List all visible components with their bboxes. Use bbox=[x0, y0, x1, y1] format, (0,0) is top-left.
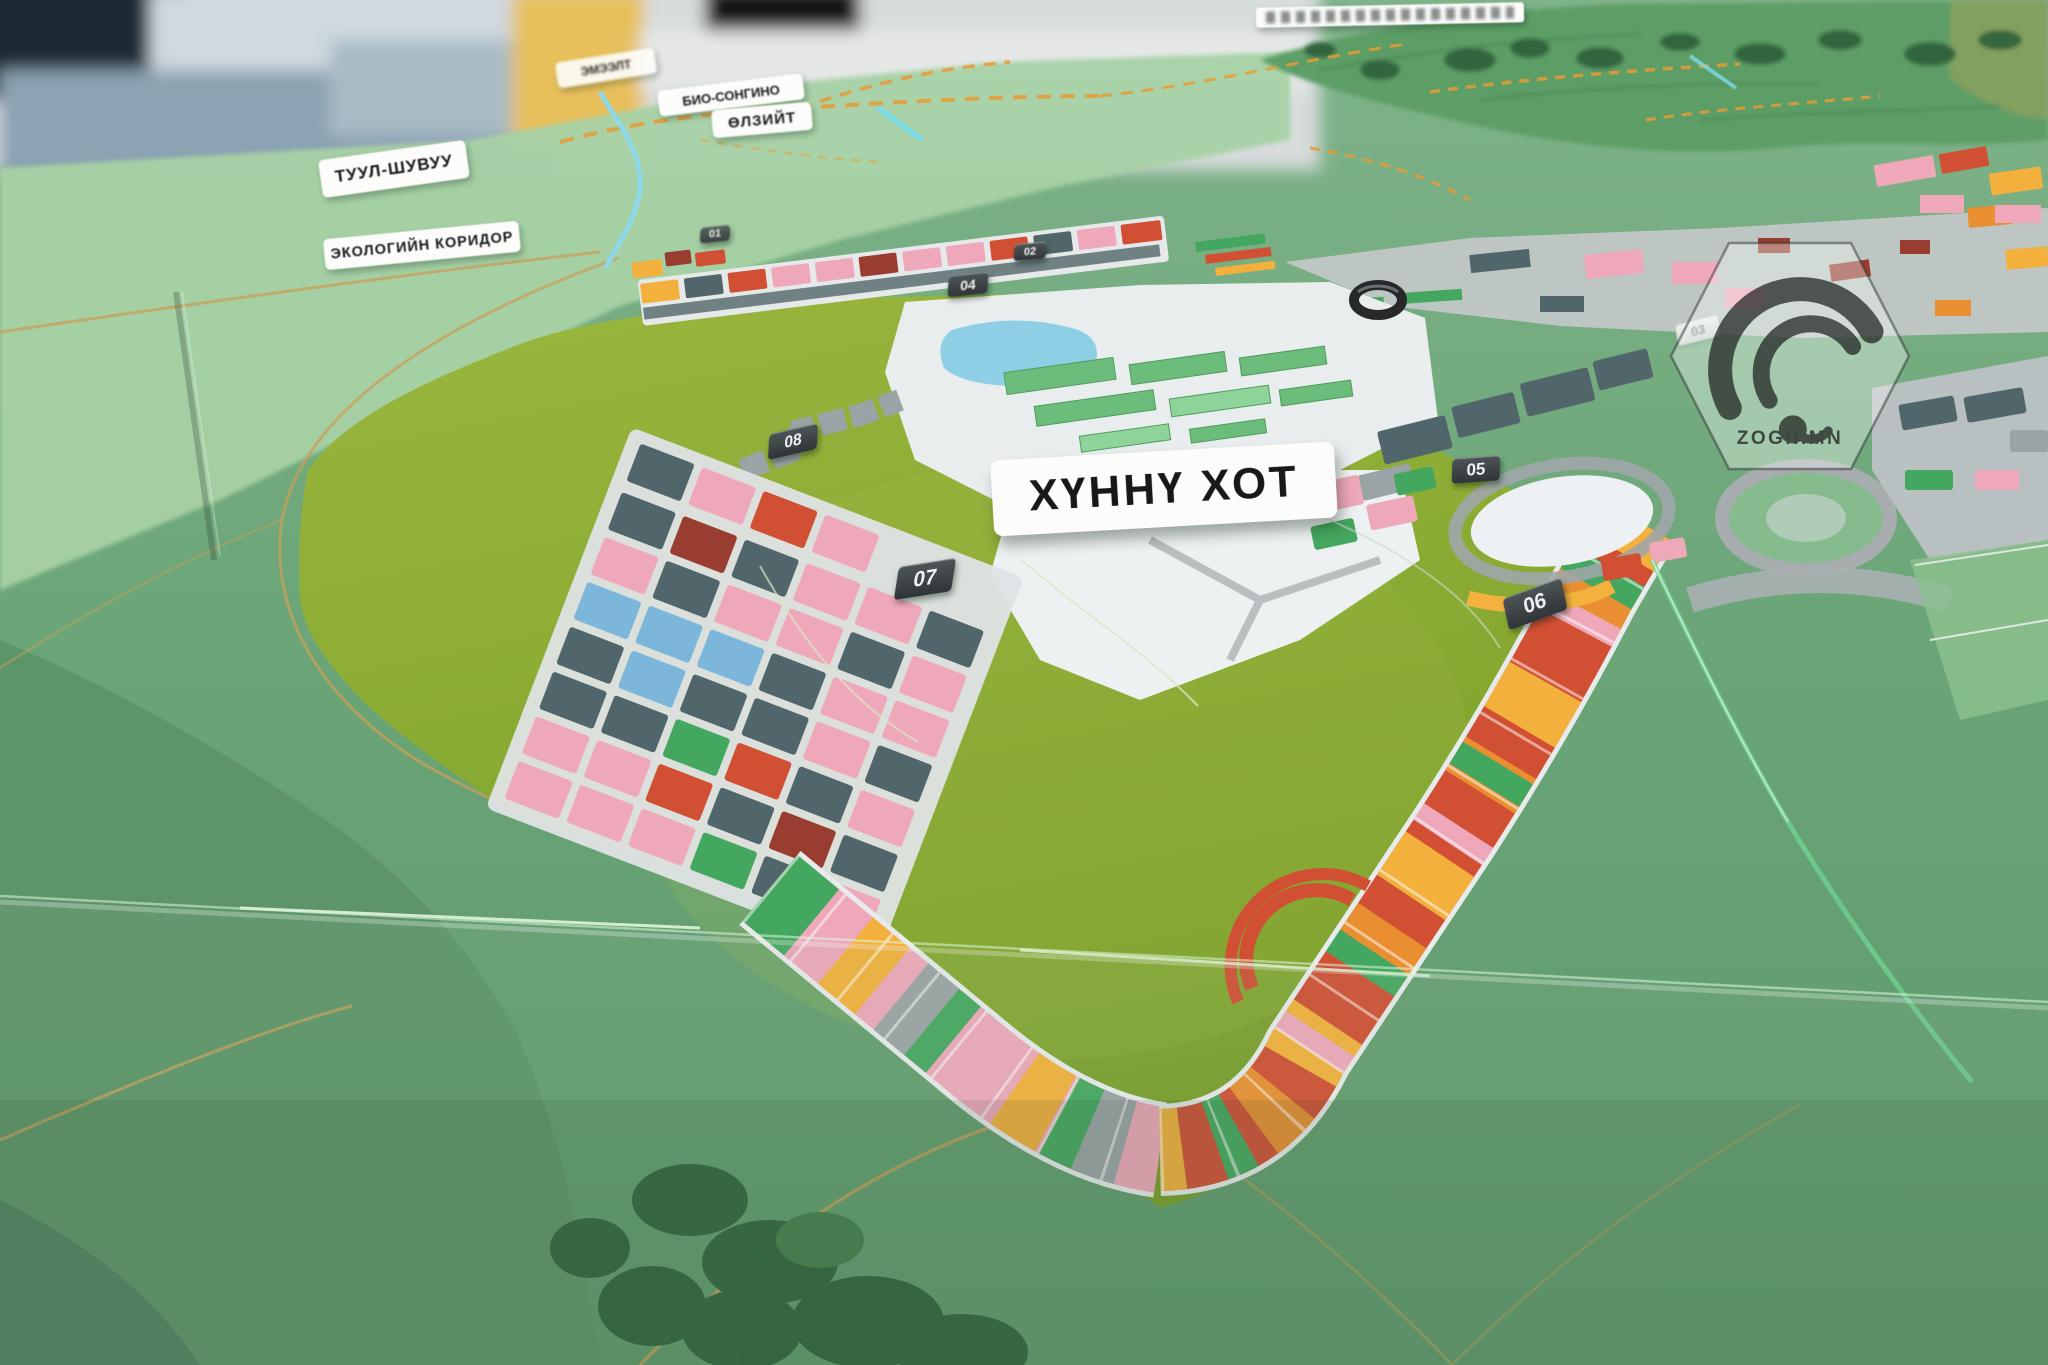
district-badge-02: 02 bbox=[1014, 242, 1047, 262]
illegible-text-smudge bbox=[1266, 6, 1514, 23]
vignette bbox=[0, 1100, 2048, 1365]
model-terrain-art bbox=[0, 0, 2048, 1365]
city-model-photo: ЭМЭЭЛТ БИО-СОНГИНО ӨЛЗИЙТ ТУУЛ-ШУВУУ ЭКО… bbox=[0, 0, 2048, 1365]
watermark: ZOGII.MN bbox=[1668, 240, 1912, 472]
district-badge-01: 01 bbox=[700, 224, 730, 243]
watermark-text: ZOGII.MN bbox=[1668, 428, 1912, 450]
district-badge-05: 05 bbox=[1452, 455, 1501, 483]
district-badge-04: 04 bbox=[947, 272, 988, 297]
